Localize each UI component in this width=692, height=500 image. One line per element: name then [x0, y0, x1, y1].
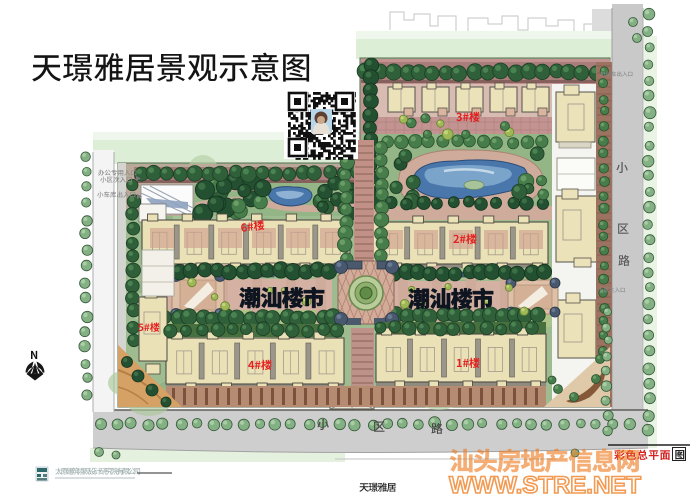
svg-text:WWW.STRE.NET: WWW.STRE.NET: [449, 472, 641, 499]
